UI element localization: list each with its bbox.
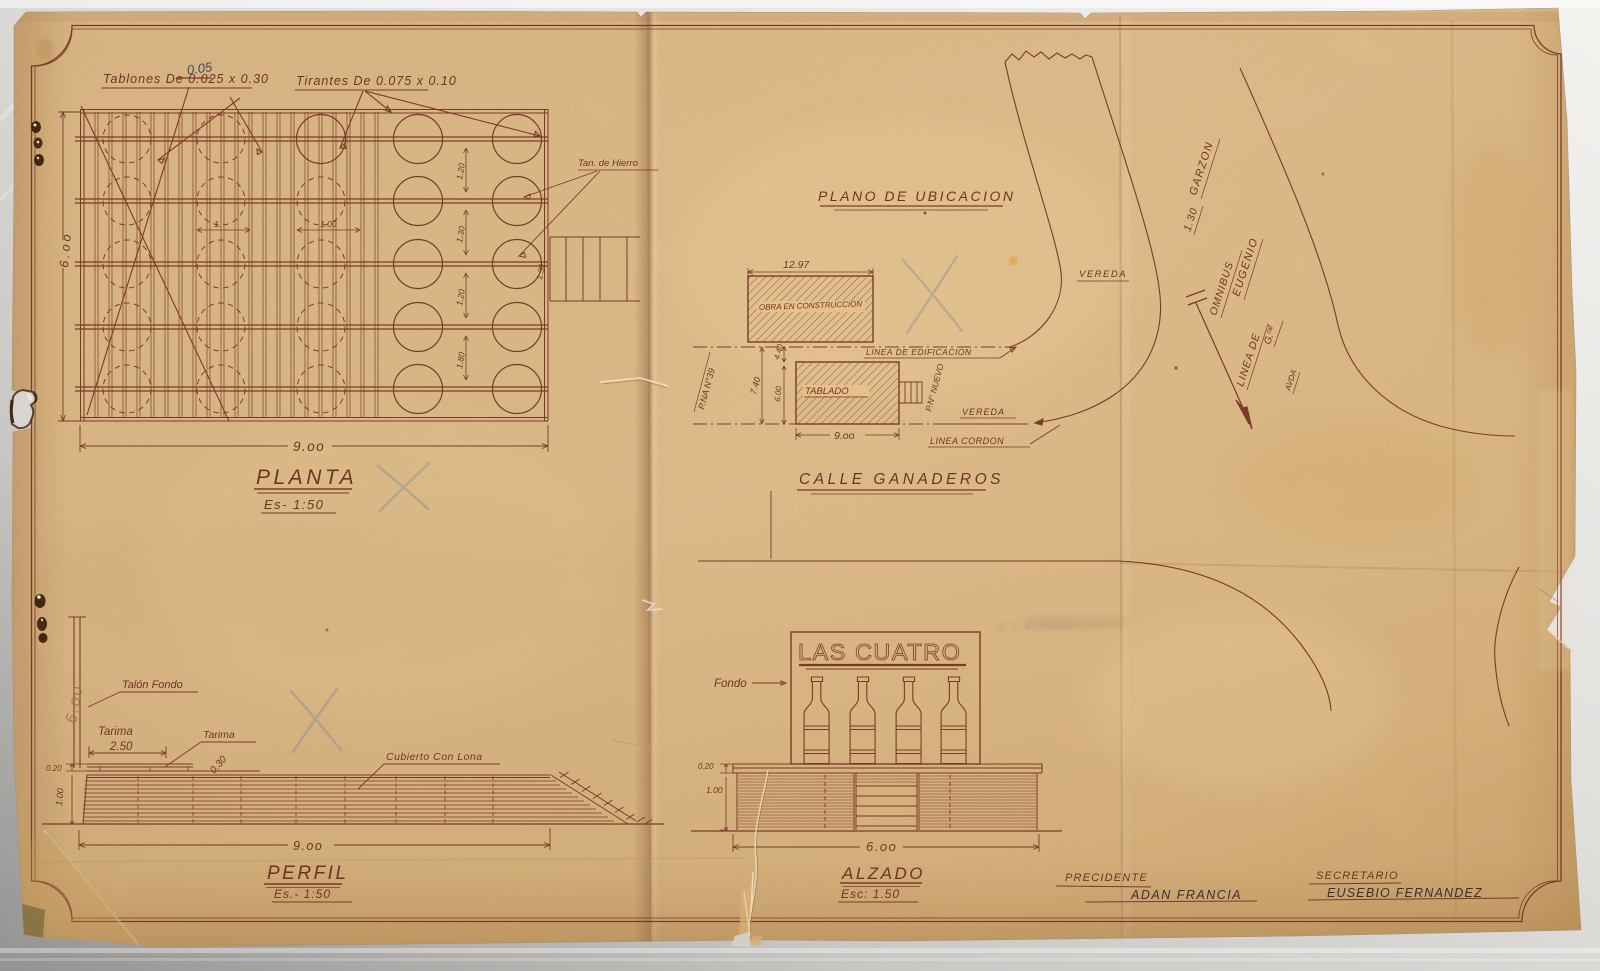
- svg-text:1.00: 1.00: [706, 785, 723, 795]
- svg-text:LINEA CORDON: LINEA CORDON: [930, 436, 1004, 446]
- svg-text:SECRETARIO: SECRETARIO: [1316, 870, 1399, 882]
- svg-text:PLANO DE UBICACION: PLANO DE UBICACION: [818, 188, 1015, 204]
- svg-text:Cubierto Con Lona: Cubierto Con Lona: [386, 751, 483, 763]
- svg-text:Tarima: Tarima: [98, 726, 133, 738]
- svg-text:Esc: 1.50: Esc: 1.50: [841, 887, 900, 901]
- svg-text:1.00: 1.00: [54, 788, 65, 806]
- svg-text:Tablones De 0.025 x 0.30: Tablones De 0.025 x 0.30: [103, 72, 269, 86]
- svg-text:VEREDA: VEREDA: [962, 407, 1005, 417]
- svg-text:Tan. de Hierro: Tan. de Hierro: [578, 158, 638, 169]
- svg-text:6.oo: 6.oo: [866, 839, 897, 854]
- svg-text:6.00: 6.00: [773, 385, 783, 402]
- svg-text:9.oo: 9.oo: [293, 439, 325, 454]
- svg-text:Fondo: Fondo: [714, 678, 747, 690]
- svg-text:9.oo: 9.oo: [293, 839, 323, 853]
- svg-text:CALLE GANADEROS: CALLE GANADEROS: [799, 471, 1004, 488]
- svg-text:ALZADO: ALZADO: [841, 864, 925, 883]
- svg-text:Es- 1:50: Es- 1:50: [264, 497, 324, 512]
- svg-text:VEREDA: VEREDA: [1079, 269, 1127, 280]
- svg-text:1.00: 1.00: [320, 219, 337, 229]
- svg-text:Es.- 1:50: Es.- 1:50: [274, 887, 331, 901]
- svg-text:B.P.S. 1949: B.P.S. 1949: [998, 622, 1072, 633]
- svg-text:Talón Fondo: Talón Fondo: [122, 679, 183, 691]
- svg-text:LINEA DE EDIFICACION: LINEA DE EDIFICACION: [866, 347, 972, 357]
- svg-text:Tirantes De 0.075 x 0.10: Tirantes De 0.075 x 0.10: [296, 74, 457, 88]
- svg-text:LAS CUATRO: LAS CUATRO: [798, 639, 961, 665]
- svg-text:EUSEBIO FERNANDEZ: EUSEBIO FERNANDEZ: [1327, 886, 1483, 900]
- svg-text:12.97: 12.97: [783, 259, 810, 271]
- svg-text:2.50: 2.50: [109, 741, 133, 753]
- svg-text:PERFIL: PERFIL: [267, 863, 349, 884]
- svg-text:PLANTA: PLANTA: [256, 466, 357, 489]
- svg-text:0.20: 0.20: [698, 762, 714, 771]
- svg-text:PRECIDENTE: PRECIDENTE: [1065, 872, 1148, 884]
- svg-text:0.20: 0.20: [46, 764, 62, 773]
- svg-text:Tarima: Tarima: [203, 729, 235, 741]
- svg-text:ADAN FRANCIA: ADAN FRANCIA: [1130, 888, 1242, 902]
- svg-text:TABLADO: TABLADO: [805, 386, 849, 397]
- svg-text:9.oo: 9.oo: [834, 430, 855, 442]
- svg-text:1.: 1.: [214, 219, 221, 229]
